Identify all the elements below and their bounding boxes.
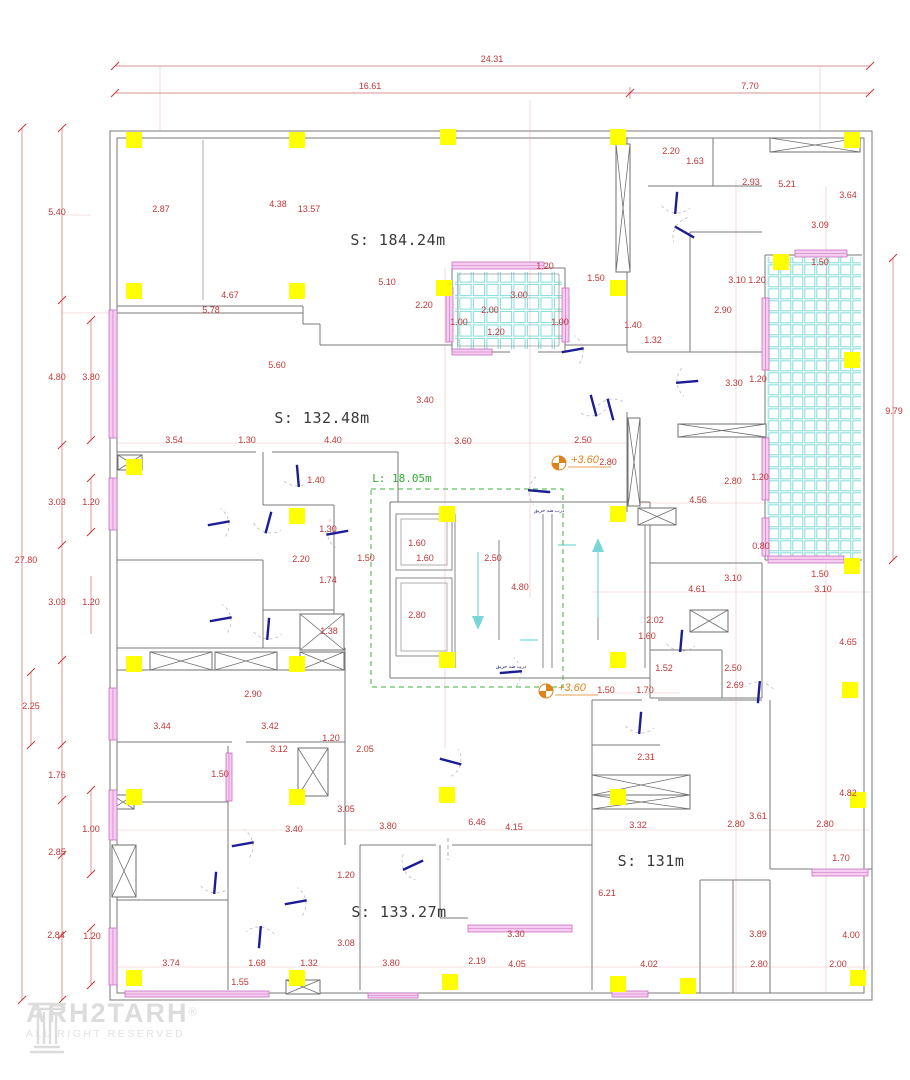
dimension-label: 1.32 <box>644 335 662 345</box>
dimension-label: 6.46 <box>468 817 486 827</box>
column-marker <box>842 682 858 698</box>
dimension-label: 4.02 <box>640 959 658 969</box>
shaft-box <box>215 652 277 670</box>
dimension-label: 3.44 <box>153 721 171 731</box>
door <box>246 919 274 947</box>
window <box>762 438 769 500</box>
window <box>812 869 868 876</box>
dimension-label: 3.61 <box>749 811 767 821</box>
column-marker <box>610 976 626 992</box>
area-label: S: 132.48m <box>274 409 369 427</box>
column-marker <box>610 789 626 805</box>
dimension-label: 1.20 <box>82 597 100 607</box>
shaft-box <box>638 508 676 525</box>
stair-zone-outline <box>371 489 563 687</box>
dimension-label: 7.70 <box>741 81 759 91</box>
dimension-label: 4.82 <box>839 788 857 798</box>
dimension-label: 1.50 <box>811 569 829 579</box>
dimension-label: 3.80 <box>82 372 100 382</box>
dimension-label: 3.00 <box>510 290 528 300</box>
door <box>201 873 229 901</box>
column-marker <box>289 970 305 986</box>
floor-plan-canvas: 24.3116.617.7027.805.404.803.803.031.203… <box>0 0 910 1080</box>
column-marker <box>440 129 456 145</box>
dimension-label: 0.80 <box>752 541 770 551</box>
column-marker <box>126 789 142 805</box>
dimension-label: 3.32 <box>629 820 647 830</box>
door <box>581 396 608 423</box>
dimension-label: 1.76 <box>48 770 66 780</box>
column-marker <box>844 558 860 574</box>
dimension-label: 2.20 <box>292 554 310 564</box>
dimension-label: 4.80 <box>511 582 529 592</box>
window <box>109 928 117 985</box>
column-marker <box>439 652 455 668</box>
shaft-box <box>678 424 766 437</box>
dimension-label: 3.10 <box>728 275 746 285</box>
dimension-label: 4.38 <box>269 199 287 209</box>
dimension-label: 3.89 <box>749 929 767 939</box>
dimension-label: 2.25 <box>22 701 40 711</box>
dimension-label: 5.60 <box>268 360 286 370</box>
dimension-label: 1.55 <box>231 977 249 987</box>
window <box>762 298 769 370</box>
dimension-label: 4.65 <box>839 637 857 647</box>
dimension-label: 1.60 <box>416 553 434 563</box>
dimension-label: 3.09 <box>811 220 829 230</box>
dimension-label: 3.10 <box>814 584 832 594</box>
door <box>596 392 623 419</box>
dimension-label: 13.57 <box>298 204 321 214</box>
dimension-label: 1.68 <box>248 958 266 968</box>
dimension-label: 4.67 <box>221 290 239 300</box>
dimension-label: 3.80 <box>379 821 397 831</box>
windows <box>109 250 868 998</box>
dimension-label: 2.05 <box>356 744 374 754</box>
column-marker <box>126 283 142 299</box>
dimension-label: 1.30 <box>238 435 256 445</box>
dimension-label: 2.93 <box>742 177 760 187</box>
level-value: +3.60 <box>571 454 600 466</box>
column-marker <box>439 506 455 522</box>
door <box>626 713 654 741</box>
column-marker <box>610 506 626 522</box>
terrace-tile-area <box>767 257 861 559</box>
dimension-label: 24.31 <box>481 54 504 64</box>
dimension-label: 1.50 <box>211 769 229 779</box>
registered-mark-icon: ® <box>189 1007 197 1019</box>
column-marker <box>289 789 305 805</box>
dimension-label: 3.40 <box>416 395 434 405</box>
dimension-label: 2.80 <box>408 610 426 620</box>
door <box>669 368 697 396</box>
dimension-label: 2.50 <box>724 663 742 673</box>
void-tile-area <box>455 272 562 349</box>
dimension-label: 1.40 <box>624 320 642 330</box>
dimension-label: 1.20 <box>337 870 355 880</box>
dimension-label: 2.00 <box>829 959 847 969</box>
area-label: S: 133.27m <box>351 903 446 921</box>
window <box>446 288 453 342</box>
dimension-label: 2.50 <box>484 553 502 563</box>
dimension-label: 4.80 <box>48 372 66 382</box>
dimension-label: 3.05 <box>337 804 355 814</box>
door <box>254 619 282 647</box>
dimension-label: 2.20 <box>415 300 433 310</box>
dimension-label: 3.64 <box>839 190 857 200</box>
dimension-label: 4.40 <box>324 435 342 445</box>
window <box>109 790 117 840</box>
dimension-label: 1.20 <box>322 733 340 743</box>
dimension-label: 27.80 <box>15 555 38 565</box>
column-marker <box>436 280 452 296</box>
level-marker: +3.60 <box>539 682 598 698</box>
dimension-label: 1.20 <box>83 931 101 941</box>
dimension-label: 1.50 <box>811 257 829 267</box>
area-label: S: 131m <box>618 852 685 870</box>
window <box>368 993 418 998</box>
dimension-label: 1.32 <box>300 958 318 968</box>
dimension-label: 5.21 <box>778 179 796 189</box>
dimension-label: 4.15 <box>505 822 523 832</box>
staircase <box>371 489 645 687</box>
dimension-label: 4.00 <box>842 930 860 940</box>
dimension-label: 5.40 <box>48 207 66 217</box>
dimension-label: 1.60 <box>638 631 656 641</box>
shaft-box <box>300 652 344 670</box>
column-marker <box>610 652 626 668</box>
dimension-label: 4.05 <box>508 959 526 969</box>
dimension-label: 3.03 <box>48 497 66 507</box>
door <box>667 631 695 659</box>
shaft-box <box>628 418 640 506</box>
dimension-label: 1.70 <box>636 685 654 695</box>
dimension-label: 1.20 <box>487 327 505 337</box>
door <box>396 854 422 880</box>
window <box>452 349 492 355</box>
area-label: S: 184.24m <box>350 231 445 249</box>
dimension-label: 1.00 <box>551 317 569 327</box>
column-marker <box>126 656 142 672</box>
shaft-box <box>298 748 328 796</box>
dimension-label: 3.08 <box>337 938 355 948</box>
level-markers: +3.60+3.60 <box>539 454 611 698</box>
door <box>662 193 690 221</box>
door <box>501 658 529 686</box>
window <box>768 556 844 563</box>
dimension-label: 2.90 <box>714 305 732 315</box>
dimension-label: 5.10 <box>378 277 396 287</box>
dimension-label: 3.10 <box>724 573 742 583</box>
column-marker <box>126 459 142 475</box>
dimension-label: 1.50 <box>587 273 605 283</box>
window <box>452 262 544 269</box>
door <box>211 605 239 633</box>
door <box>286 888 314 916</box>
dimension-label: 2.00 <box>481 305 499 315</box>
shaft-box <box>592 795 690 809</box>
dimension-label: 2.80 <box>724 476 742 486</box>
dimension-label: 3.03 <box>48 597 66 607</box>
window <box>109 478 117 530</box>
column-marker <box>610 280 626 296</box>
dimension-label: 2.90 <box>244 689 262 699</box>
column-marker <box>289 283 305 299</box>
door <box>209 509 237 537</box>
dimension-label: 2.20 <box>662 146 680 156</box>
exterior-walls <box>110 131 872 1000</box>
shaft-box <box>592 775 690 795</box>
dimension-label: 2.02 <box>646 615 664 625</box>
dimension-label: 9.79 <box>885 406 903 416</box>
column-marker <box>850 970 866 986</box>
dimension-label: 4.56 <box>689 495 707 505</box>
dimension-label: 2.80 <box>727 819 745 829</box>
column-marker <box>773 254 789 270</box>
column-marker <box>289 508 305 524</box>
dimension-label: 1.00 <box>450 317 468 327</box>
shaft-box <box>112 845 136 897</box>
dimension-label: 1.20 <box>536 261 554 271</box>
dimension-label: 3.40 <box>285 824 303 834</box>
window <box>109 688 117 740</box>
dimension-label: 1.40 <box>307 475 325 485</box>
column-marker <box>680 978 696 994</box>
column-marker <box>439 787 455 803</box>
fire-door-note: درب ضد حریق <box>496 664 526 670</box>
dimension-label: 3.60 <box>454 436 472 446</box>
dimension-label: 3.42 <box>261 721 279 731</box>
dimension-label: 1.52 <box>655 663 673 673</box>
dimension-label: 2.80 <box>750 959 768 969</box>
column-marker <box>442 974 458 990</box>
dimension-label: 3.30 <box>507 929 525 939</box>
window <box>109 310 117 438</box>
fire-door-note: درب ضد حریق <box>534 508 564 514</box>
door <box>254 513 281 540</box>
dimension-label: 3.54 <box>165 435 183 445</box>
tarh2tarh-watermark: ARH2TARH® ALL RIGHT RESERVED <box>26 1000 197 1040</box>
shaft-box <box>150 652 212 670</box>
dimension-label: 3.12 <box>270 744 288 754</box>
dimension-label: 2.69 <box>726 680 744 690</box>
column-marker <box>289 132 305 148</box>
dimension-label: 1.70 <box>832 853 850 863</box>
dimension-label: 1.00 <box>82 824 100 834</box>
dimension-label: 2.80 <box>599 457 617 467</box>
window <box>795 250 847 257</box>
door <box>521 477 549 505</box>
shaft-box <box>690 610 728 632</box>
dimension-label: 6.21 <box>598 888 616 898</box>
dimension-label: 3.80 <box>382 958 400 968</box>
door <box>441 749 468 776</box>
dimension-label: 1.38 <box>320 626 338 636</box>
dimension-label: 1.50 <box>357 553 375 563</box>
dimension-label: 5.78 <box>202 305 220 315</box>
dimension-label: 1.60 <box>408 538 426 548</box>
column-marker <box>289 656 305 672</box>
dimension-label: 2.31 <box>637 752 655 762</box>
door <box>233 830 261 858</box>
window <box>125 991 269 997</box>
column-marker <box>844 352 860 368</box>
dimension-label: 1.20 <box>82 497 100 507</box>
shaft-box <box>616 144 630 272</box>
floor-plan-sheet: 24.3116.617.7027.805.404.803.803.031.203… <box>0 0 910 1080</box>
stair-length-label: L: 18.05m <box>372 472 432 485</box>
column-logo-icon <box>26 1000 68 1056</box>
dimension-label: 16.61 <box>359 81 382 91</box>
dimension-label: 2.50 <box>574 435 592 445</box>
level-value: +3.60 <box>558 682 587 694</box>
dimension-label: 2.87 <box>152 204 170 214</box>
dimension-label: 2.84 <box>47 930 65 940</box>
column-marker <box>126 132 142 148</box>
dimension-label: 2.85 <box>48 847 66 857</box>
dimension-label: 1.63 <box>686 156 704 166</box>
column-marker <box>844 132 860 148</box>
dimension-label: 4.61 <box>688 584 706 594</box>
door <box>669 218 693 242</box>
column-marker <box>610 129 626 145</box>
dimension-label: 3.74 <box>162 958 180 968</box>
dimension-label: 1.74 <box>319 575 337 585</box>
window <box>562 288 569 342</box>
dimension-label: 2.80 <box>816 819 834 829</box>
dimension-label: 2.19 <box>468 956 486 966</box>
dimension-label: 1.50 <box>597 685 615 695</box>
dimension-label: 1.20 <box>748 275 766 285</box>
dimension-label: 1.30 <box>319 524 337 534</box>
dimension-label: 3.30 <box>725 378 743 388</box>
dimension-label: 1.20 <box>751 472 769 482</box>
dimension-label: 1.20 <box>749 374 767 384</box>
column-marker <box>126 970 142 986</box>
